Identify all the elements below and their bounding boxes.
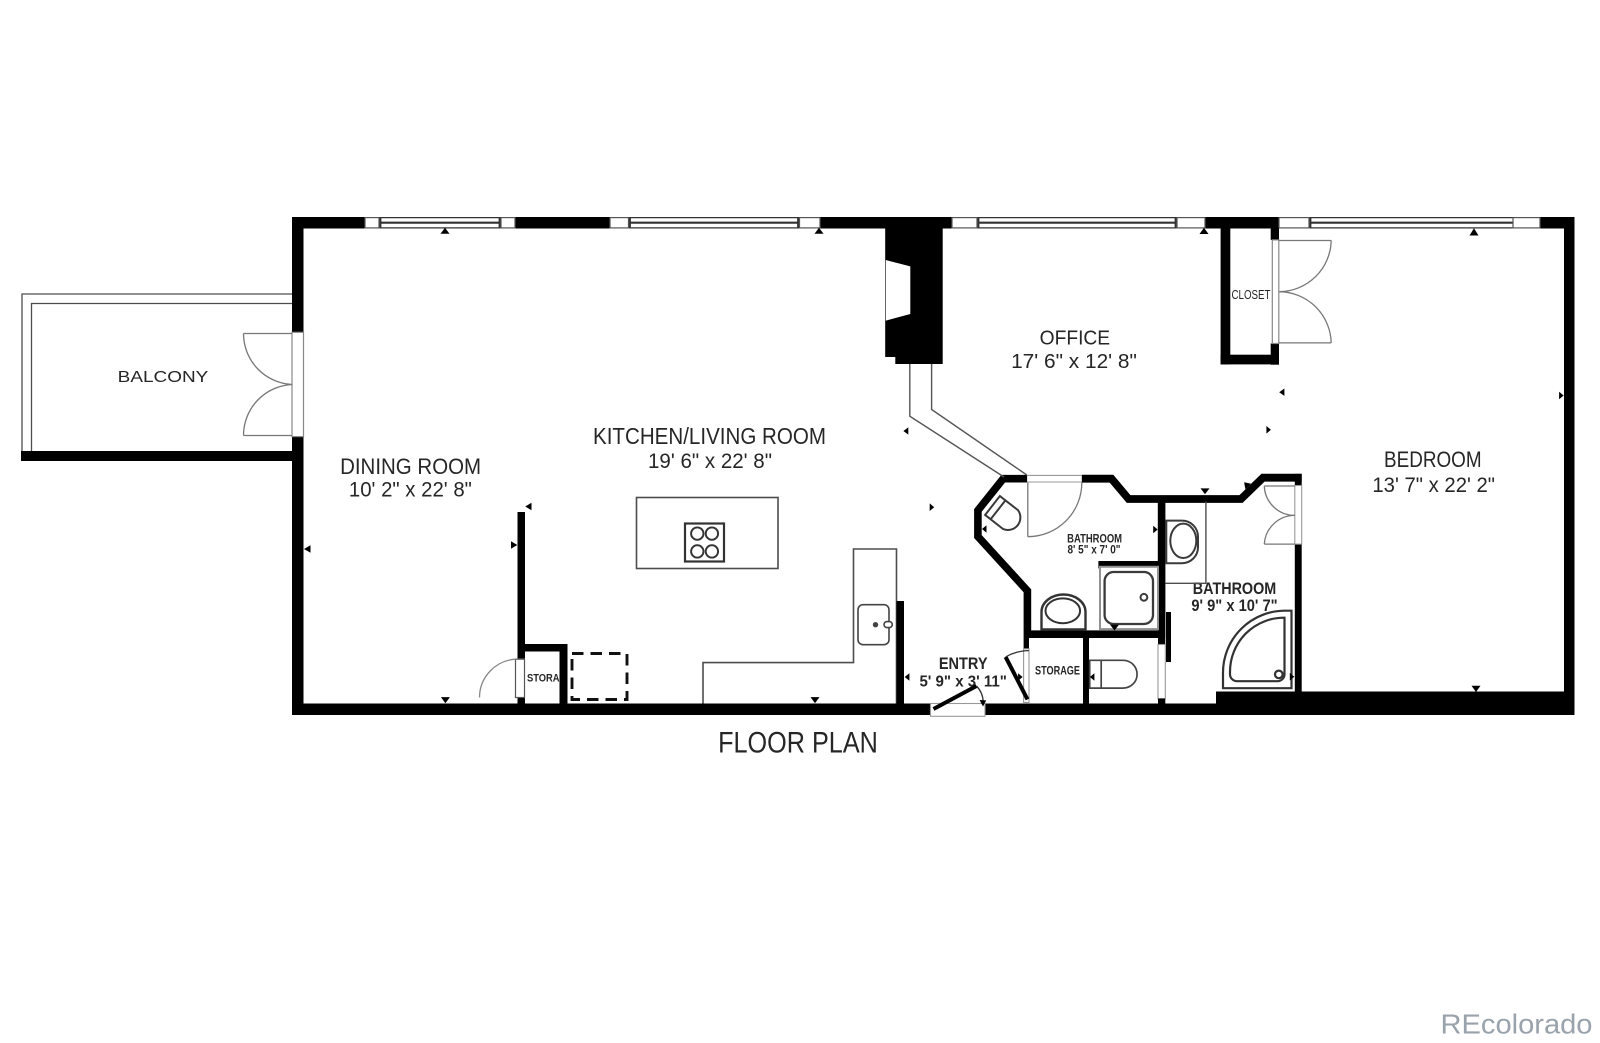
svg-text:8' 5" x 7' 0": 8' 5" x 7' 0" <box>1068 544 1121 556</box>
svg-text:BALCONY: BALCONY <box>118 369 209 386</box>
svg-text:DINING ROOM: DINING ROOM <box>340 454 481 479</box>
svg-text:19' 6" x 22' 8": 19' 6" x 22' 8" <box>648 449 772 473</box>
svg-text:FLOOR PLAN: FLOOR PLAN <box>718 727 878 760</box>
svg-text:13' 7" x 22' 2": 13' 7" x 22' 2" <box>1372 474 1495 497</box>
svg-text:KITCHEN/LIVING ROOM: KITCHEN/LIVING ROOM <box>593 423 826 449</box>
svg-text:BEDROOM: BEDROOM <box>1384 447 1482 472</box>
svg-text:BATHROOM: BATHROOM <box>1067 531 1122 545</box>
svg-text:10' 2" x 22' 8": 10' 2" x 22' 8" <box>349 478 472 501</box>
svg-text:CLOSET: CLOSET <box>1232 287 1271 302</box>
svg-text:5' 9" x 3' 11": 5' 9" x 3' 11" <box>919 673 1007 690</box>
svg-text:REcolorado: REcolorado <box>1441 1009 1593 1040</box>
svg-text:17' 6" x 12' 8": 17' 6" x 12' 8" <box>1011 350 1137 373</box>
svg-text:ENTRY: ENTRY <box>939 655 988 673</box>
svg-text:STORAGE: STORAGE <box>1035 663 1080 677</box>
svg-text:9' 9" x 10' 7": 9' 9" x 10' 7" <box>1191 597 1277 615</box>
svg-text:OFFICE: OFFICE <box>1040 326 1111 349</box>
